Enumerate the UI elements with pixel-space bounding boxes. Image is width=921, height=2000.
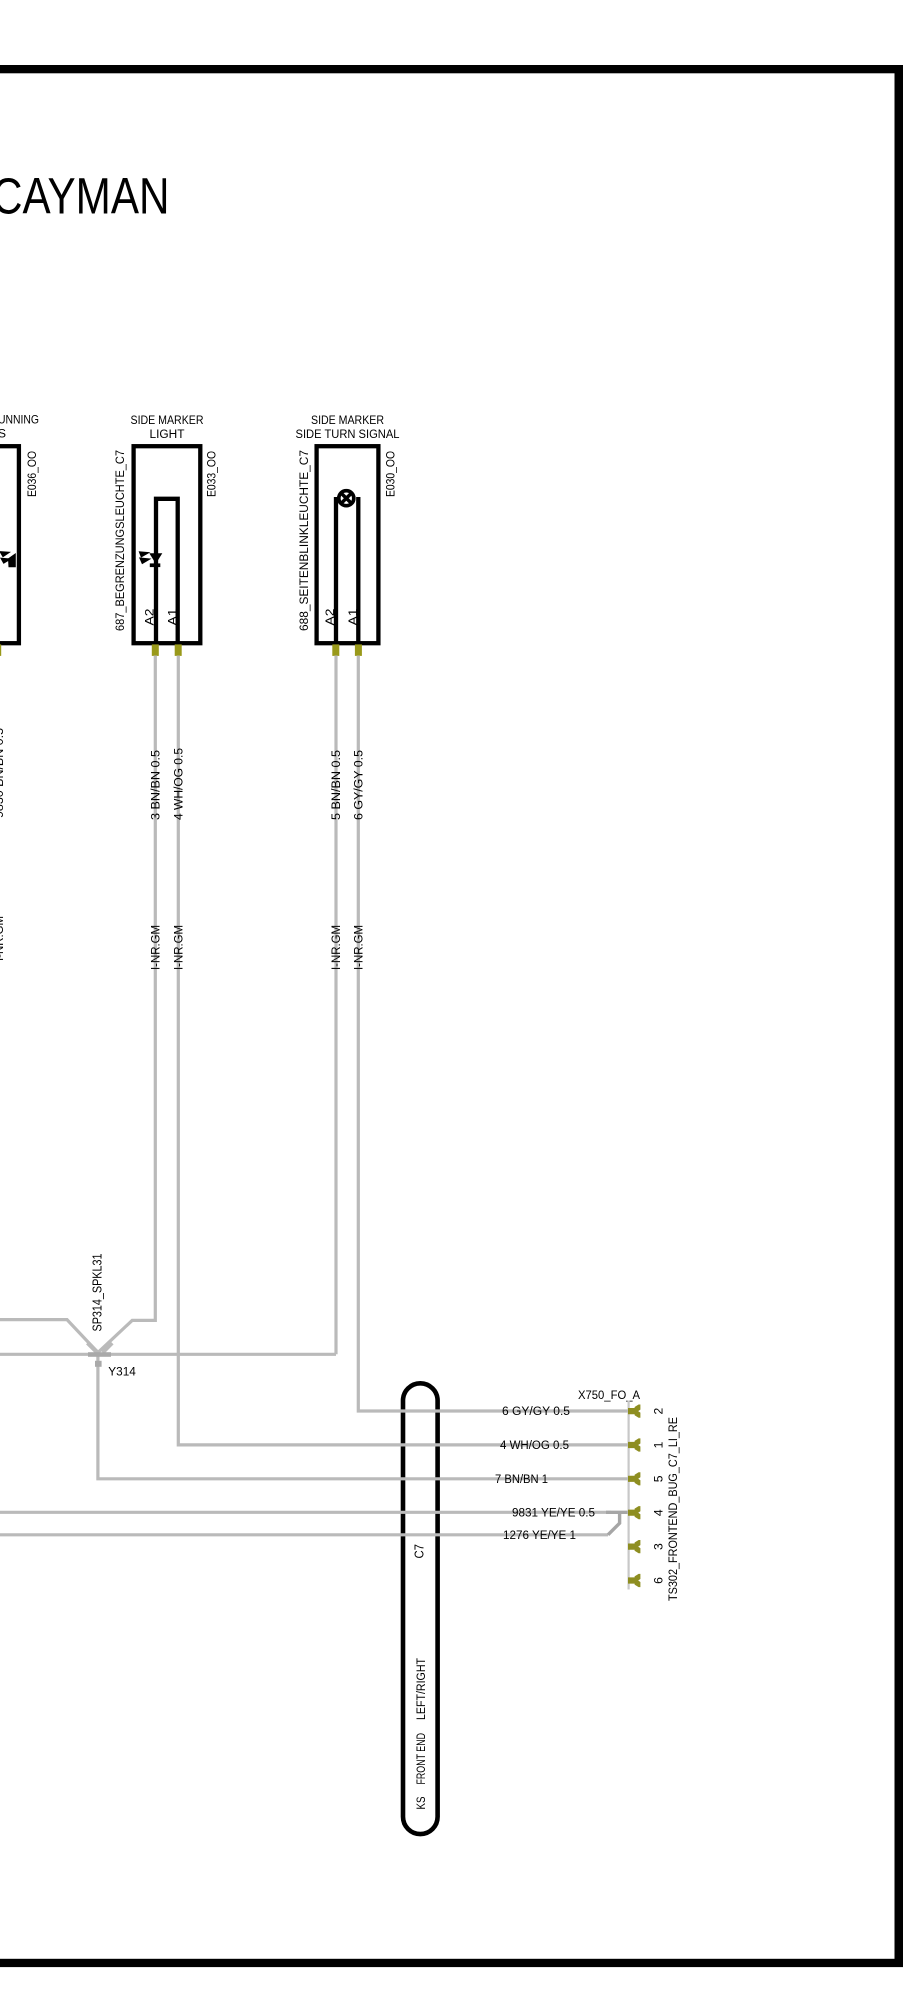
svg-text:687_BEGRENZUNGSLEUCHTE_C7: 687_BEGRENZUNGSLEUCHTE_C7 xyxy=(113,450,127,631)
svg-text:5: 5 xyxy=(651,1475,665,1482)
svg-text:A2: A2 xyxy=(323,608,337,625)
svg-text:I-NR.GM: I-NR.GM xyxy=(0,916,6,961)
svg-text:A1: A1 xyxy=(346,608,360,625)
svg-text:7 BN/BN 1: 7 BN/BN 1 xyxy=(495,1472,548,1486)
svg-text:LIGHT: LIGHT xyxy=(150,427,186,441)
svg-text:Y314: Y314 xyxy=(108,1365,136,1379)
svg-text:6: 6 xyxy=(651,1577,665,1584)
svg-text:6 GY/GY 0.5: 6 GY/GY 0.5 xyxy=(502,1404,570,1418)
svg-text:I-NR.GM: I-NR.GM xyxy=(352,925,366,970)
svg-text:UNNING: UNNING xyxy=(0,413,39,427)
svg-text:TS302_FRONTEND_BUG_C7_LI_RE: TS302_FRONTEND_BUG_C7_LI_RE xyxy=(666,1417,680,1601)
svg-text:KS: KS xyxy=(414,1797,428,1810)
svg-text:E033_OO: E033_OO xyxy=(204,451,218,497)
svg-text:E030_OO: E030_OO xyxy=(384,451,398,497)
svg-text:I-NR.GM: I-NR.GM xyxy=(329,925,343,970)
svg-text:LEFT/RIGHT: LEFT/RIGHT xyxy=(414,1658,428,1720)
svg-text:A1: A1 xyxy=(166,608,180,625)
svg-text:4: 4 xyxy=(651,1509,665,1516)
svg-text:E036_OO: E036_OO xyxy=(25,451,39,497)
svg-text:9830 BN/BN 0.5: 9830 BN/BN 0.5 xyxy=(0,728,6,818)
svg-text:1: 1 xyxy=(651,1441,665,1448)
svg-text:5 BN/BN 0.5: 5 BN/BN 0.5 xyxy=(329,750,343,820)
svg-text:CAYMAN: CAYMAN xyxy=(0,168,170,225)
svg-text:X750_FO_A: X750_FO_A xyxy=(578,1388,641,1402)
svg-text:4 WH/OG 0.5: 4 WH/OG 0.5 xyxy=(172,748,186,820)
svg-text:9831 YE/YE 0.5: 9831 YE/YE 0.5 xyxy=(512,1506,595,1520)
svg-text:SIDE MARKER: SIDE MARKER xyxy=(131,413,204,427)
svg-text:I-NR.GM: I-NR.GM xyxy=(149,925,163,970)
svg-text:4 WH/OG 0.5: 4 WH/OG 0.5 xyxy=(500,1438,569,1452)
svg-text:3: 3 xyxy=(651,1543,665,1550)
svg-text:I-NR.GM: I-NR.GM xyxy=(172,925,186,970)
svg-text:FRONT END: FRONT END xyxy=(414,1733,428,1785)
svg-text:688_SEITENBLINKLEUCHTE_C7: 688_SEITENBLINKLEUCHTE_C7 xyxy=(297,450,311,631)
svg-text:SIDE MARKER: SIDE MARKER xyxy=(311,413,384,427)
svg-text:3 BN/BN 0.5: 3 BN/BN 0.5 xyxy=(149,750,163,820)
svg-text:1276 YE/YE 1: 1276 YE/YE 1 xyxy=(503,1528,576,1542)
svg-text:2: 2 xyxy=(651,1407,665,1414)
svg-text:LIGHTS: LIGHTS xyxy=(0,427,6,441)
svg-text:C7: C7 xyxy=(413,1544,427,1559)
svg-text:SP314_SPKL31: SP314_SPKL31 xyxy=(90,1253,104,1331)
svg-text:A2: A2 xyxy=(143,608,157,625)
svg-text:6 GY/GY 0.5: 6 GY/GY 0.5 xyxy=(352,750,366,820)
svg-text:SIDE TURN SIGNAL: SIDE TURN SIGNAL xyxy=(296,427,400,441)
